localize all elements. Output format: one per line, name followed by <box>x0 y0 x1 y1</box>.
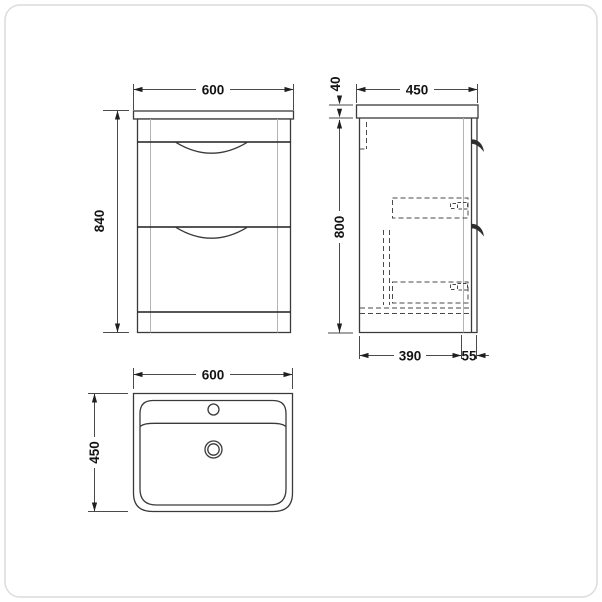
basin-countertop-outline <box>134 394 293 512</box>
lower-drawer-box-hidden <box>393 282 469 303</box>
plan-depth-dimension: 450 <box>87 394 129 512</box>
front-projection-label: 55 <box>461 349 477 364</box>
plan-depth-label: 450 <box>87 441 102 464</box>
arrowhead-down <box>92 503 97 512</box>
side-depth-dimension: 450 <box>357 82 478 103</box>
vanity-unit-technical-drawing: 600 840 450 <box>0 0 602 602</box>
arrowhead-right <box>285 87 294 92</box>
arrowhead-left <box>360 353 369 358</box>
hidden-internal-details <box>360 122 473 314</box>
drawer-runner-clip-hidden <box>458 203 468 210</box>
arrowhead-left <box>477 353 486 358</box>
cabinet-body-side <box>360 118 478 333</box>
arrowhead-down <box>115 324 120 333</box>
arrowhead-up <box>337 120 342 129</box>
front-height-dimension: 840 <box>92 111 129 333</box>
carcass-depth-label: 390 <box>399 349 422 364</box>
arrowhead-down <box>337 96 342 105</box>
side-height-label: 800 <box>332 216 347 239</box>
plan-width-label: 600 <box>202 368 225 383</box>
arrowhead-left <box>134 372 143 377</box>
front-width-dimension: 600 <box>134 82 294 110</box>
technical-drawing-page: 600 840 450 <box>0 0 602 602</box>
front-elevation-view: 600 840 <box>92 82 294 333</box>
front-width-label: 600 <box>202 83 225 98</box>
arrowhead-right <box>284 372 293 377</box>
drawer-runner-clip-hidden <box>458 284 468 291</box>
arrowhead-up <box>92 394 97 403</box>
side-height-dimension: 800 <box>328 120 353 334</box>
plan-view-basin: 600 450 <box>87 367 293 512</box>
upper-drawer-box-hidden <box>393 198 469 218</box>
worktop-side <box>357 105 479 118</box>
arrowhead-down <box>337 324 342 333</box>
plan-width-dimension: 600 <box>134 367 293 389</box>
drawer-runner-clip-hidden <box>451 285 457 290</box>
side-depth-label: 450 <box>406 83 429 98</box>
front-height-label: 840 <box>92 210 107 233</box>
worktop-front <box>134 111 294 119</box>
drawer-runner-clip-hidden <box>451 204 457 209</box>
arrowhead-up <box>115 111 120 120</box>
bottom-panel-hidden <box>360 308 472 314</box>
arrowhead-left <box>357 87 366 92</box>
worktop-thickness-dimension: 40 <box>328 76 353 118</box>
back-fixing-bracket-hidden <box>360 122 367 149</box>
side-bottom-dimensions: 390 55 <box>360 335 490 364</box>
waste-pipe-hidden <box>384 230 390 305</box>
arrowhead-left <box>134 87 143 92</box>
arrowhead-right <box>469 87 478 92</box>
arrowhead-down <box>337 109 342 118</box>
cabinet-body-front <box>138 119 291 333</box>
side-elevation-view: 450 40 800 <box>328 76 489 363</box>
arrowhead-right <box>453 353 462 358</box>
worktop-thickness-label: 40 <box>328 76 343 91</box>
